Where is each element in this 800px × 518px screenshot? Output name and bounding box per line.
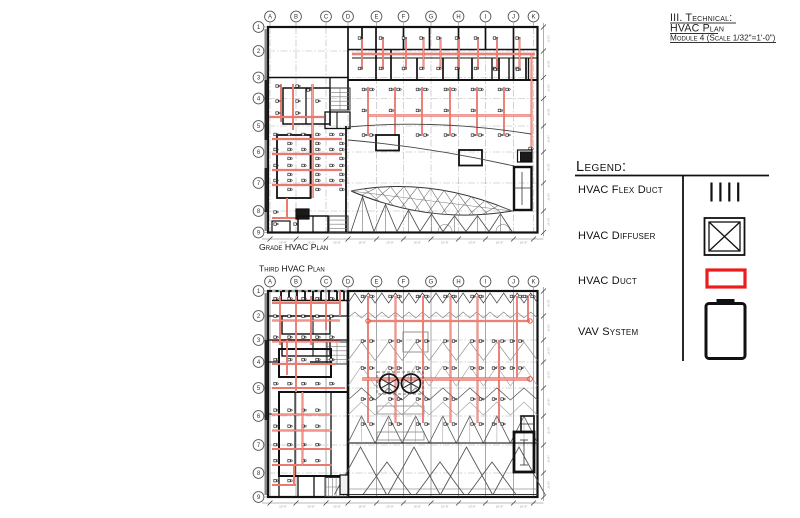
svg-text:Legend:: Legend:: [576, 159, 626, 175]
svg-text:16'-8": 16'-8": [547, 398, 551, 406]
svg-text:F: F: [402, 280, 406, 286]
svg-text:16'-8": 16'-8": [547, 324, 551, 332]
svg-text:16'-8": 16'-8": [279, 505, 287, 509]
svg-text:Third HVAC Plan: Third HVAC Plan: [259, 264, 325, 274]
svg-text:H: H: [456, 15, 460, 21]
svg-text:16'-8": 16'-8": [496, 241, 504, 245]
svg-text:16'-8": 16'-8": [520, 505, 528, 509]
svg-text:K: K: [531, 280, 535, 286]
svg-text:J: J: [512, 280, 515, 286]
svg-text:B: B: [294, 280, 298, 286]
svg-text:16'-8": 16'-8": [547, 108, 551, 116]
svg-text:16'-8": 16'-8": [547, 84, 551, 92]
svg-text:B: B: [294, 15, 298, 21]
svg-text:16'-8": 16'-8": [547, 218, 551, 226]
svg-text:D: D: [346, 280, 351, 286]
svg-text:16'-8": 16'-8": [333, 241, 341, 245]
svg-text:C: C: [324, 15, 329, 21]
svg-text:16'-8": 16'-8": [547, 371, 551, 379]
svg-text:16'-8": 16'-8": [441, 241, 449, 245]
svg-text:16'-8": 16'-8": [547, 193, 551, 201]
svg-text:HVAC Flex Duct: HVAC Flex Duct: [578, 184, 663, 196]
svg-text:A: A: [268, 280, 272, 286]
svg-text:HVAC Duct: HVAC Duct: [578, 275, 637, 287]
svg-text:E: E: [374, 280, 378, 286]
svg-text:VAV System: VAV System: [578, 326, 638, 338]
svg-text:16'-8": 16'-8": [468, 241, 476, 245]
svg-text:16'-8": 16'-8": [547, 135, 551, 143]
svg-text:16'-8": 16'-8": [441, 505, 449, 509]
svg-text:16'-8": 16'-8": [547, 35, 551, 43]
svg-text:16'-8": 16'-8": [386, 505, 394, 509]
svg-text:D: D: [346, 15, 351, 21]
svg-text:16'-8": 16'-8": [547, 481, 551, 489]
svg-text:C: C: [324, 280, 329, 286]
svg-text:J: J: [512, 15, 515, 21]
svg-text:Module 4 (Scale 1/32"=1'-0"): Module 4 (Scale 1/32"=1'-0"): [670, 34, 776, 43]
svg-text:16'-8": 16'-8": [468, 505, 476, 509]
svg-text:16'-8": 16'-8": [547, 347, 551, 355]
svg-text:HVAC Diffuser: HVAC Diffuser: [578, 230, 656, 242]
svg-text:Grade HVAC Plan: Grade HVAC Plan: [259, 242, 328, 252]
svg-text:G: G: [429, 280, 434, 286]
svg-text:16'-8": 16'-8": [413, 505, 421, 509]
svg-text:E: E: [374, 15, 378, 21]
svg-text:16'-8": 16'-8": [520, 241, 528, 245]
svg-text:16'-8": 16'-8": [386, 241, 394, 245]
svg-text:16'-8": 16'-8": [547, 455, 551, 463]
svg-text:16'-8": 16'-8": [358, 241, 366, 245]
svg-text:K: K: [531, 15, 535, 21]
svg-text:16'-8": 16'-8": [547, 164, 551, 172]
svg-text:H: H: [456, 280, 460, 286]
svg-text:16'-8": 16'-8": [307, 505, 315, 509]
svg-text:16'-8": 16'-8": [333, 505, 341, 509]
svg-text:16'-8": 16'-8": [547, 60, 551, 68]
svg-text:16'-8": 16'-8": [413, 241, 421, 245]
svg-text:16'-8": 16'-8": [547, 427, 551, 435]
svg-text:G: G: [429, 15, 434, 21]
svg-text:16'-8": 16'-8": [496, 505, 504, 509]
svg-text:A: A: [268, 15, 272, 21]
svg-text:16'-8": 16'-8": [358, 505, 366, 509]
svg-text:16'-8": 16'-8": [547, 300, 551, 308]
svg-text:F: F: [402, 15, 406, 21]
